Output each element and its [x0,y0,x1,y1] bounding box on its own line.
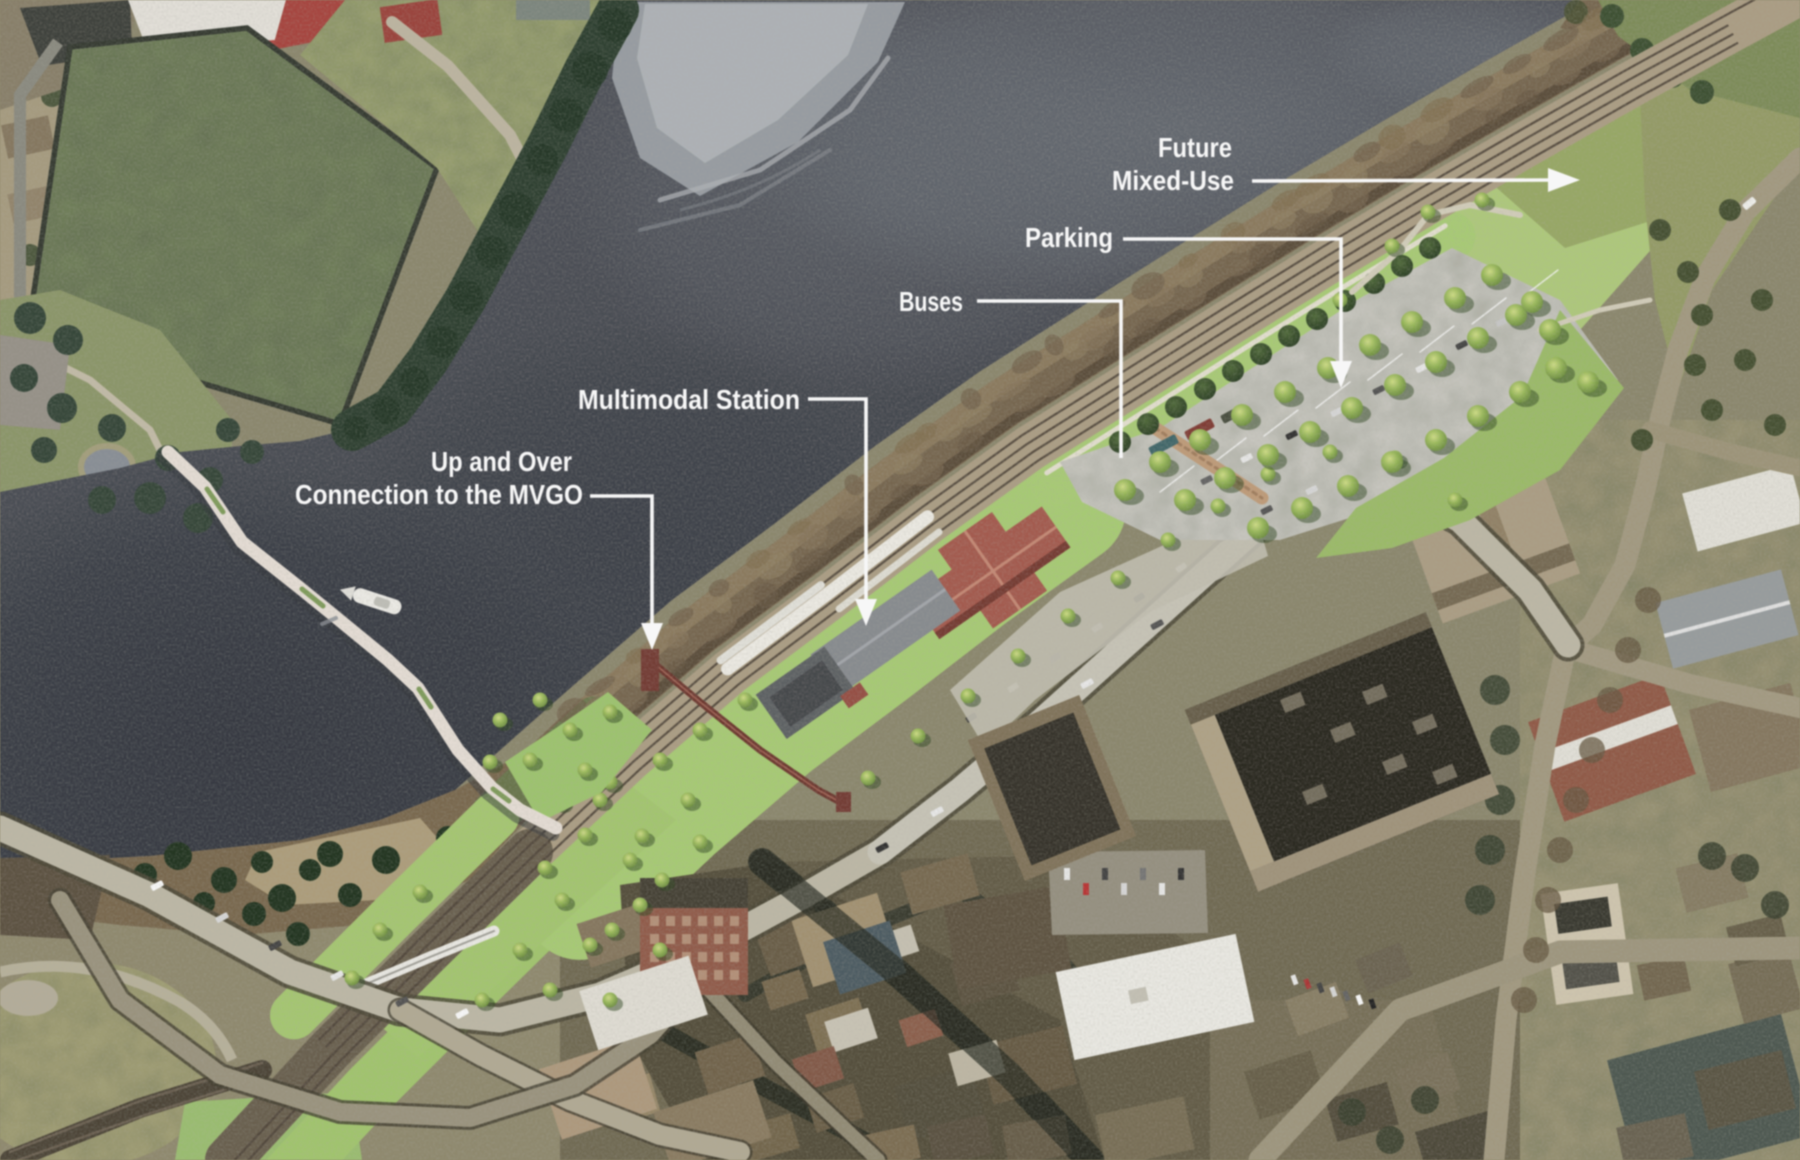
svg-text:Buses: Buses [899,286,963,317]
svg-text:Parking: Parking [1025,222,1113,253]
svg-text:Up and Over: Up and Over [431,446,572,477]
svg-text:Connection to the MVGO: Connection to the MVGO [295,479,583,510]
svg-text:Multimodal Station: Multimodal Station [578,384,800,415]
svg-text:Future: Future [1158,132,1232,163]
svg-text:Mixed-Use: Mixed-Use [1112,165,1234,196]
